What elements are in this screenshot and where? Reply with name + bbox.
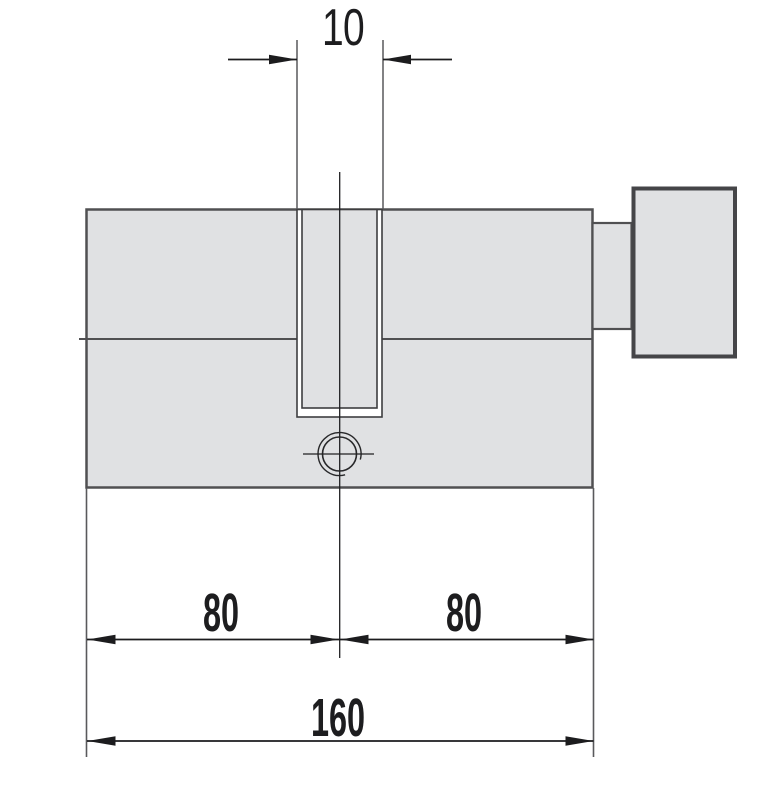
arrowhead-80-right-inner — [341, 635, 369, 645]
cylinder-drawing — [0, 0, 761, 795]
dim-label-total-length: 160 — [311, 691, 365, 745]
arrowhead-10-right — [383, 55, 411, 65]
arrowhead-10-left — [269, 55, 297, 65]
arrowhead-80-left-outer — [88, 635, 116, 645]
arrowhead-160-left — [88, 736, 116, 746]
dim-label-slot-width: 10 — [322, 2, 364, 54]
arrowhead-80-right-outer — [566, 635, 594, 645]
thumb-turn-knob — [634, 189, 736, 357]
arrowhead-80-left-inner — [311, 635, 339, 645]
technical-drawing-canvas: 10 80 80 160 — [0, 0, 761, 795]
dim-label-right-half: 80 — [446, 586, 482, 640]
knob-neck — [593, 223, 632, 329]
arrowhead-160-right — [566, 736, 594, 746]
dim-label-left-half: 80 — [203, 586, 239, 640]
